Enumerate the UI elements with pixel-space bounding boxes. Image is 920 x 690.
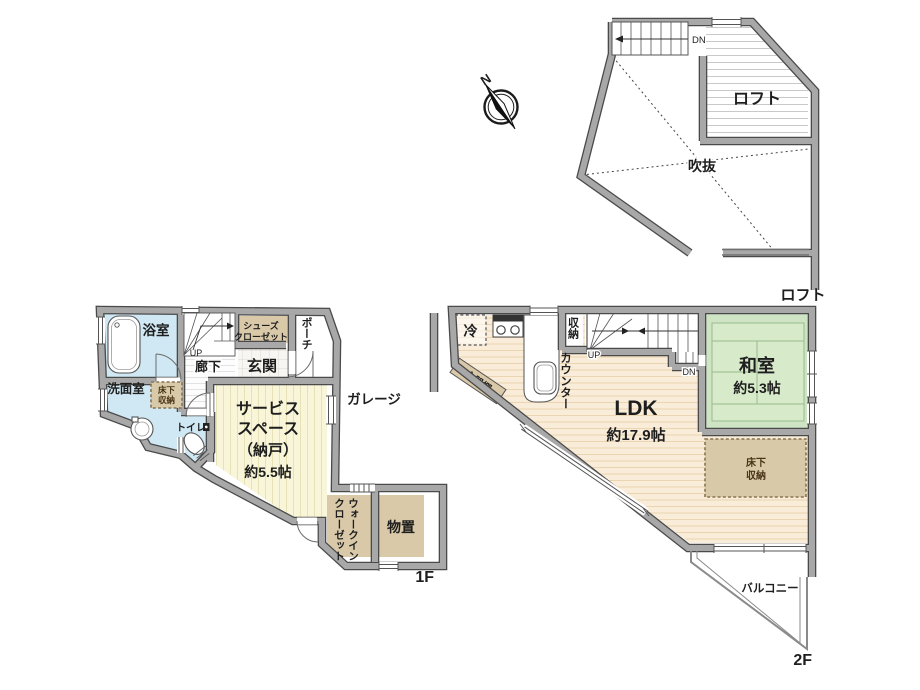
storage-2f-label: 収納 bbox=[567, 317, 580, 340]
refrigerator-box: 冷 bbox=[455, 315, 486, 345]
service-space-size-label: 約5.5帖 bbox=[244, 464, 291, 480]
loft-stairs bbox=[612, 22, 688, 55]
floor-plan-drawing: N DN ロフト 吹抜 ロフト bbox=[0, 0, 920, 690]
service-space-label-line2: スペース bbox=[237, 421, 299, 438]
corridor-label: 廊下 bbox=[195, 359, 221, 374]
stairs-dn-label-2f: DN bbox=[683, 367, 696, 377]
second-floor-label: 2F bbox=[793, 652, 812, 669]
porch-label: ポーチ bbox=[300, 316, 313, 350]
loft-room-floor bbox=[706, 25, 808, 138]
washroom-label: 洗面室 bbox=[107, 381, 145, 396]
first-floor-label: 1F bbox=[415, 569, 434, 586]
garage-label: ガレージ bbox=[347, 392, 401, 407]
loft-floor-label: ロフト bbox=[780, 287, 825, 304]
loft-stairs-dn-label: DN bbox=[692, 35, 706, 46]
balcony-label: バルコニー bbox=[741, 582, 798, 595]
storage-room-label: 物置 bbox=[387, 519, 415, 535]
ldk-label: LDK bbox=[614, 397, 657, 420]
balcony: バルコニー bbox=[691, 551, 807, 649]
underfloor-storage-2f: 床下 収納 bbox=[705, 439, 806, 497]
service-space-label-line1: サービス bbox=[236, 400, 300, 418]
underfloor-1f-label-line1: 床下 bbox=[158, 385, 176, 395]
loft-plan: DN ロフト 吹抜 ロフト bbox=[581, 17, 826, 304]
shoe-closet-label-line1: シューズ bbox=[243, 320, 279, 331]
underfloor-1f-label-line2: 収納 bbox=[158, 395, 175, 405]
counter-label: カウンター bbox=[559, 352, 572, 410]
sink-icon bbox=[131, 417, 153, 440]
japanese-room-size-label: 約5.3帖 bbox=[733, 380, 780, 396]
stove-icon bbox=[493, 315, 523, 337]
underfloor-2f-label-line1: 床下 bbox=[746, 456, 766, 469]
stairs-up-label-2f: UP bbox=[588, 350, 601, 360]
bathtub-icon bbox=[108, 316, 140, 373]
second-floor-plan: 冷 食器棚 床下 収納 bbox=[450, 306, 817, 670]
bathroom-label: 浴室 bbox=[143, 322, 170, 338]
service-space-label-line3: （納戸） bbox=[238, 441, 298, 459]
walk-in-closet-label-line1: ウォークイン bbox=[347, 498, 359, 561]
walk-in-closet-label-line2: クローゼット bbox=[333, 498, 345, 561]
floor-plan-canvas: N DN ロフト 吹抜 ロフト bbox=[0, 0, 920, 690]
ldk-size-label: 約17.9帖 bbox=[606, 426, 665, 444]
kitchen-sink-icon bbox=[534, 362, 556, 394]
loft-room-label: ロフト bbox=[733, 91, 781, 108]
void-label: 吹抜 bbox=[688, 158, 717, 174]
japanese-room-label: 和室 bbox=[739, 355, 775, 376]
compass: N bbox=[478, 71, 518, 129]
underfloor-storage-1f: 床下 収納 bbox=[151, 382, 182, 408]
refrigerator-label: 冷 bbox=[464, 323, 478, 339]
shoe-closet-label-line2: クローゼット bbox=[234, 331, 288, 342]
toilet-label: トイレ bbox=[176, 422, 206, 434]
loft-top-window bbox=[712, 17, 741, 27]
stairs-up-label-1f: UP bbox=[190, 348, 203, 358]
first-floor-plan: UP 床下 収納 浴室 洗面室 トイレ 廊下 玄関 シューズ bbox=[96, 306, 443, 586]
entrance-label: 玄関 bbox=[247, 357, 277, 375]
underfloor-2f-label-line2: 収納 bbox=[746, 469, 766, 482]
compass-north-label: N bbox=[478, 71, 494, 89]
